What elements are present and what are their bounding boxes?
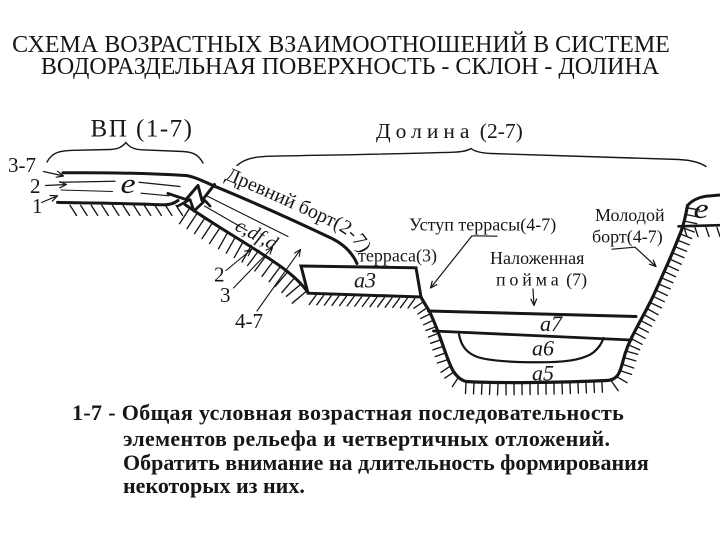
svg-text:4-7: 4-7	[235, 309, 263, 333]
svg-text:элементов рельефа и четвертичн: элементов рельефа и четвертичных отложен…	[123, 426, 610, 451]
svg-text:некоторых из них.: некоторых из них.	[123, 473, 305, 498]
svg-text:ВП (1-7): ВП (1-7)	[91, 116, 194, 143]
svg-text:Уступ террасы(4-7): Уступ террасы(4-7)	[409, 215, 556, 236]
svg-text:а7: а7	[540, 311, 563, 336]
svg-text:Долина (2-7): Долина (2-7)	[376, 119, 523, 143]
svg-text:1: 1	[32, 194, 43, 218]
svg-text:1-7 - Общая условная возрастна: 1-7 - Общая условная возрастная последов…	[72, 400, 624, 425]
svg-text:e: e	[694, 193, 709, 224]
svg-text:e: e	[121, 168, 136, 199]
svg-text:а6: а6	[532, 336, 554, 361]
svg-text:Наложенная: Наложенная	[490, 248, 584, 268]
svg-text:ВОДОРАЗДЕЛЬНАЯ ПОВЕРХНОСТЬ - С: ВОДОРАЗДЕЛЬНАЯ ПОВЕРХНОСТЬ - СКЛОН - ДОЛ…	[41, 54, 660, 80]
svg-text:борт(4-7): борт(4-7)	[592, 227, 663, 248]
svg-text:Молодой: Молодой	[595, 205, 665, 225]
svg-text:пойма (7): пойма (7)	[496, 270, 587, 291]
svg-text:Обратить внимание на длительно: Обратить внимание на длительность формир…	[123, 450, 649, 475]
svg-text:а3: а3	[354, 268, 376, 293]
svg-text:терраса(3): терраса(3)	[358, 246, 437, 267]
svg-text:3: 3	[220, 283, 231, 307]
svg-text:а5: а5	[532, 361, 554, 386]
